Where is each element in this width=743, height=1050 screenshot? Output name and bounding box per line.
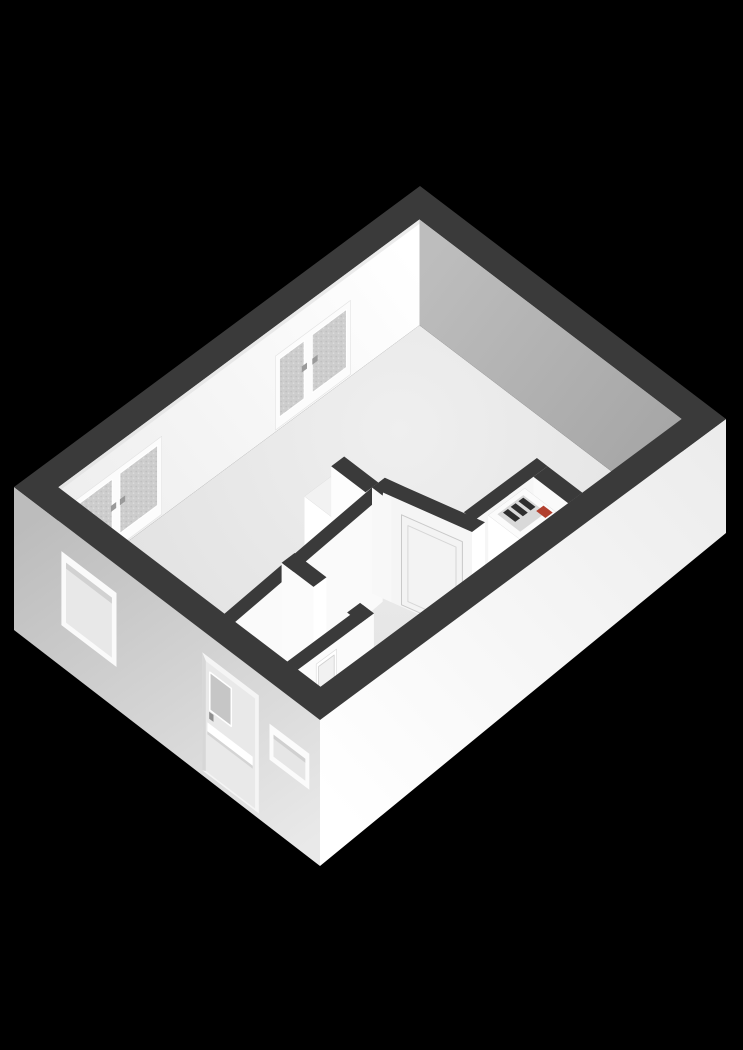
floorplan-viewport: [0, 0, 743, 1050]
front-door-reveal: [202, 652, 206, 771]
floorplan-svg: [0, 0, 743, 1050]
hall-angled-wall-face-a: [372, 488, 392, 603]
